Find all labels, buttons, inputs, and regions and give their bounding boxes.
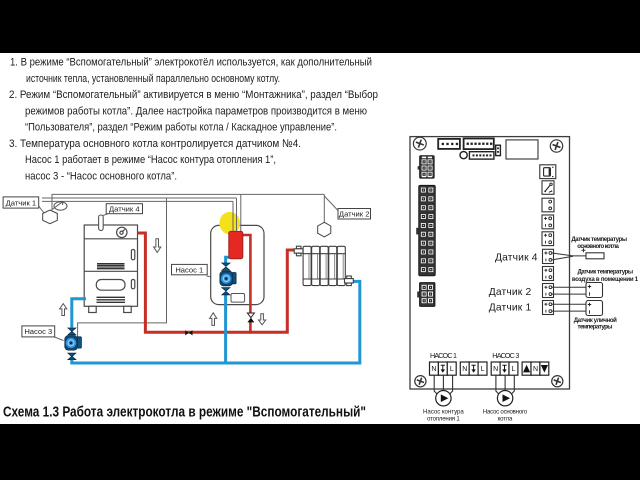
svg-text:Насос основного: Насос основного (483, 408, 528, 415)
svg-text:основного котла: основного котла (577, 243, 619, 250)
svg-text:температуры: температуры (578, 324, 613, 331)
svg-text:N: N (431, 366, 436, 373)
svg-text:Датчик температуры: Датчик температуры (571, 236, 627, 243)
svg-text:источник тепла, установленный: источник тепла, установленный параллельн… (26, 73, 280, 85)
svg-text:Датчик 1: Датчик 1 (489, 303, 532, 314)
svg-text:1. В режиме “Вспомогательный”: 1. В режиме “Вспомогательный” электрокот… (10, 57, 372, 69)
svg-text:Насос контура: Насос контура (423, 408, 464, 415)
svg-text:насос 3 - “Насос основного кот: насос 3 - “Насос основного котла”. (25, 170, 177, 182)
svg-text:Датчик 2: Датчик 2 (489, 287, 532, 298)
svg-text:L: L (512, 366, 516, 373)
svg-text:Датчик 1: Датчик 1 (6, 198, 37, 207)
svg-text:НАСОС 3: НАСОС 3 (492, 351, 519, 360)
svg-text:Датчик 4: Датчик 4 (109, 205, 140, 214)
svg-text:Датчик 4: Датчик 4 (495, 252, 538, 263)
svg-text:воздуха в помещении 1: воздуха в помещении 1 (572, 276, 639, 283)
svg-text:“Пользователя”, раздел “Режим: “Пользователя”, раздел “Режим работы кот… (25, 122, 337, 134)
svg-text:3. Температура основного котла: 3. Температура основного котла контролир… (9, 138, 301, 150)
svg-text:N: N (533, 366, 538, 373)
svg-text:отопления 1: отопления 1 (427, 416, 460, 423)
svg-text:Датчик 2: Датчик 2 (339, 209, 370, 218)
svg-text:котла: котла (498, 416, 513, 423)
svg-text:Схема 1.3 Работа электрокотла: Схема 1.3 Работа электрокотла в режиме "… (3, 403, 366, 420)
svg-text:L: L (450, 366, 454, 373)
svg-text:Датчик температуры: Датчик температуры (578, 269, 634, 276)
svg-text:Насос 3: Насос 3 (24, 327, 52, 336)
svg-text:Насос 1 работает в режиме “Нас: Насос 1 работает в режиме “Насос контура… (25, 154, 276, 166)
svg-text:НАСОС 1: НАСОС 1 (430, 351, 457, 360)
svg-text:режимов работы котла”. Далее н: режимов работы котла”. Далее настройка п… (25, 105, 367, 117)
svg-text:L: L (481, 366, 485, 373)
svg-text:Насос 1: Насос 1 (175, 266, 203, 275)
svg-text:N: N (493, 366, 498, 373)
svg-text:2. Режим “Вспомогательный” акт: 2. Режим “Вспомогательный” активируется … (9, 89, 378, 101)
svg-text:N: N (462, 366, 467, 373)
